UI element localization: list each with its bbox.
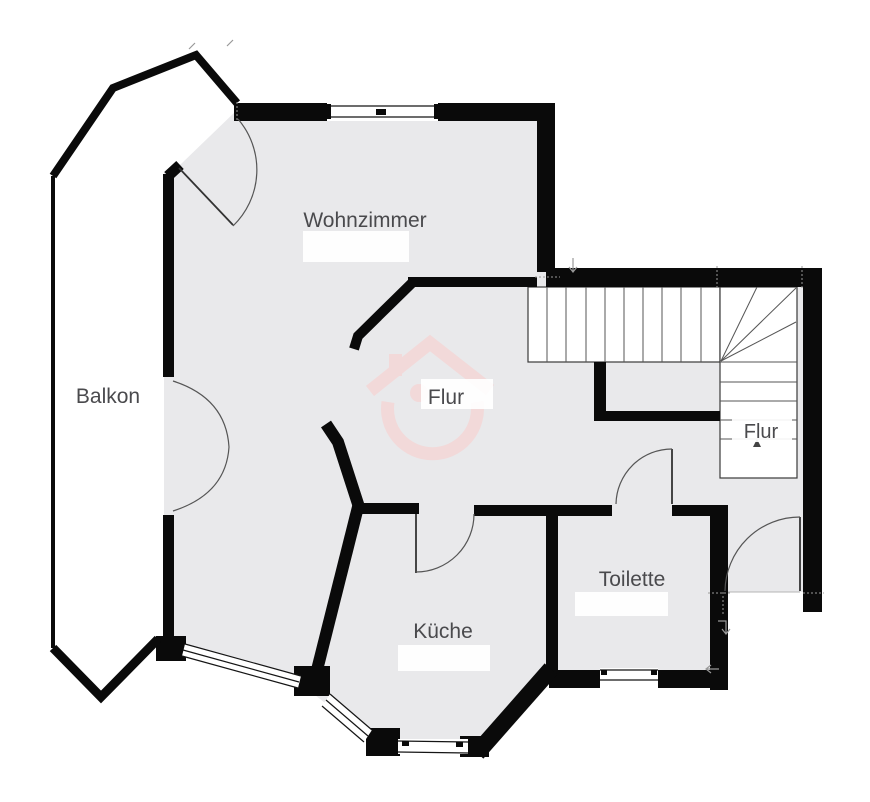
blank-box-toilette	[575, 592, 668, 616]
window-bay-bottom	[398, 739, 468, 754]
wall-right-exterior	[803, 268, 822, 612]
wall-toilette-left	[546, 505, 558, 672]
room-label-flur-center: Flur	[428, 386, 464, 409]
watermark-chimney	[389, 354, 402, 376]
window-toilette	[600, 668, 658, 682]
room-label-kueche: Küche	[413, 620, 473, 643]
wall-living-right	[537, 103, 555, 272]
room-label-toilette: Toilette	[599, 568, 666, 591]
bay-corner-block-2	[366, 728, 400, 756]
room-label-wohnzimmer: Wohnzimmer	[303, 209, 426, 232]
floor-plan-svg: Wohnzimmer Balkon Flur Flur Küche Toilet…	[0, 0, 870, 802]
wall-toilette-bottom-left	[549, 670, 600, 688]
wall-stair-top	[546, 268, 822, 287]
wall-top-left	[234, 103, 327, 121]
floor-plan-page: Wohnzimmer Balkon Flur Flur Küche Toilet…	[0, 0, 870, 802]
tick-marks-top	[189, 40, 233, 49]
wall-balcony-upper	[163, 174, 174, 377]
room-label-flur-lower: Flur	[744, 421, 779, 443]
room-label-balkon: Balkon	[76, 385, 140, 408]
wall-toilette-right	[710, 505, 728, 690]
blank-box-kueche	[398, 645, 490, 671]
wall-balcony-lower	[163, 515, 174, 639]
wall-toilette-bottom-right	[658, 670, 728, 688]
wall-toilette-top-left	[474, 505, 612, 516]
wall-hall-top	[408, 277, 537, 287]
wall-stair-void-h	[594, 411, 720, 421]
balcony-parapet-bottom	[53, 639, 158, 697]
bay-corner-block-4	[156, 636, 186, 661]
window-living-top	[327, 103, 438, 121]
blank-box-wohnzimmer	[303, 231, 409, 262]
